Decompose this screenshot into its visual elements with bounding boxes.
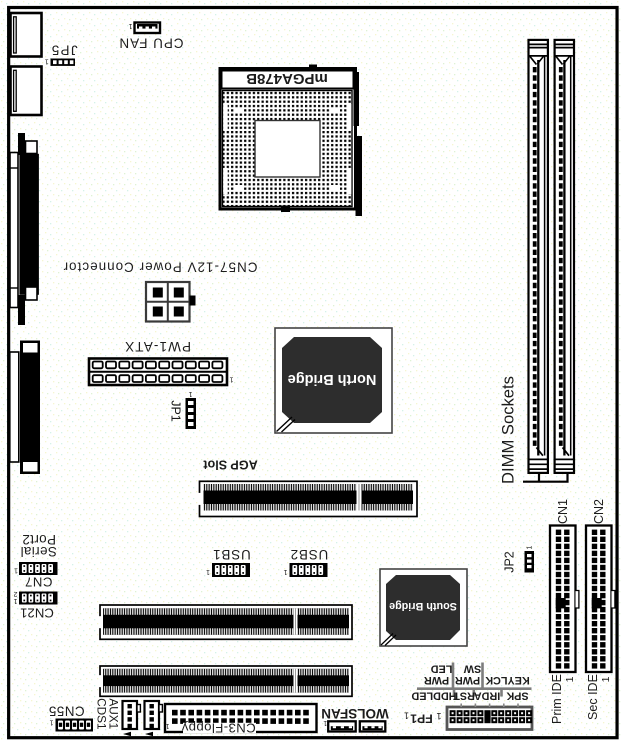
svg-text:Prim IDE: Prim IDE	[550, 674, 564, 724]
svg-text:North Bridge: North Bridge	[288, 371, 377, 387]
svg-text:SPK: SPK	[506, 690, 528, 702]
svg-text:1: 1	[49, 719, 53, 726]
svg-text:USB1: USB1	[212, 547, 251, 562]
svg-text:Serial: Serial	[20, 544, 57, 559]
svg-text:1: 1	[14, 567, 18, 574]
svg-text:DIMM Sockets: DIMM Sockets	[498, 376, 517, 484]
svg-text:AUX1: AUX1	[106, 698, 120, 729]
svg-text:IRDA: IRDA	[474, 690, 501, 702]
svg-text:CN7: CN7	[25, 574, 53, 589]
svg-text:CDS1: CDS1	[94, 698, 108, 729]
svg-text:1: 1	[527, 545, 534, 549]
svg-text:JP5: JP5	[50, 42, 77, 57]
svg-text:1: 1	[404, 710, 409, 720]
svg-text:KEYLCK: KEYLCK	[485, 674, 530, 686]
svg-text:CN57-12V Power Connector: CN57-12V Power Connector	[63, 259, 258, 274]
svg-text:SW: SW	[463, 663, 481, 675]
svg-text:Sec IDE: Sec IDE	[586, 674, 600, 720]
svg-text:FP1: FP1	[410, 712, 433, 726]
svg-text:AGP Slot: AGP Slot	[203, 458, 258, 472]
svg-text:1: 1	[323, 719, 327, 726]
svg-text:1: 1	[600, 676, 612, 682]
svg-text:1: 1	[283, 568, 287, 575]
svg-text:PW1-ATX: PW1-ATX	[124, 339, 191, 354]
svg-text:CN21: CN21	[20, 605, 54, 620]
svg-text:CN2: CN2	[592, 499, 606, 524]
svg-text:1: 1	[165, 722, 169, 729]
svg-text:1: 1	[564, 676, 576, 682]
svg-text:WOLSFAN: WOLSFAN	[321, 706, 389, 721]
svg-text:1: 1	[45, 58, 49, 65]
svg-text:1: 1	[436, 711, 441, 721]
svg-text:JP1: JP1	[169, 400, 183, 422]
svg-text:JP2: JP2	[502, 551, 516, 573]
svg-text:CPU FAN: CPU FAN	[118, 35, 183, 50]
svg-text:RST: RST	[453, 690, 475, 702]
svg-text:CN55: CN55	[48, 703, 84, 718]
svg-text:USB2: USB2	[290, 547, 329, 562]
svg-text:CN1: CN1	[556, 499, 570, 524]
svg-text:LED: LED	[431, 663, 453, 675]
svg-text:PWR: PWR	[424, 674, 449, 686]
svg-text:1: 1	[229, 376, 233, 383]
svg-text:South Bridge: South Bridge	[389, 600, 457, 612]
svg-text:CN3-Floppy: CN3-Floppy	[181, 721, 255, 736]
svg-text:1: 1	[188, 390, 192, 397]
svg-text:2: 2	[13, 590, 17, 597]
svg-text:HDDLED: HDDLED	[411, 690, 456, 702]
svg-text:1: 1	[206, 568, 210, 575]
svg-text:PWR: PWR	[455, 674, 480, 686]
svg-text:1: 1	[128, 22, 132, 29]
svg-text:mPGA478B: mPGA478B	[246, 70, 328, 87]
svg-text:1: 1	[13, 597, 17, 604]
